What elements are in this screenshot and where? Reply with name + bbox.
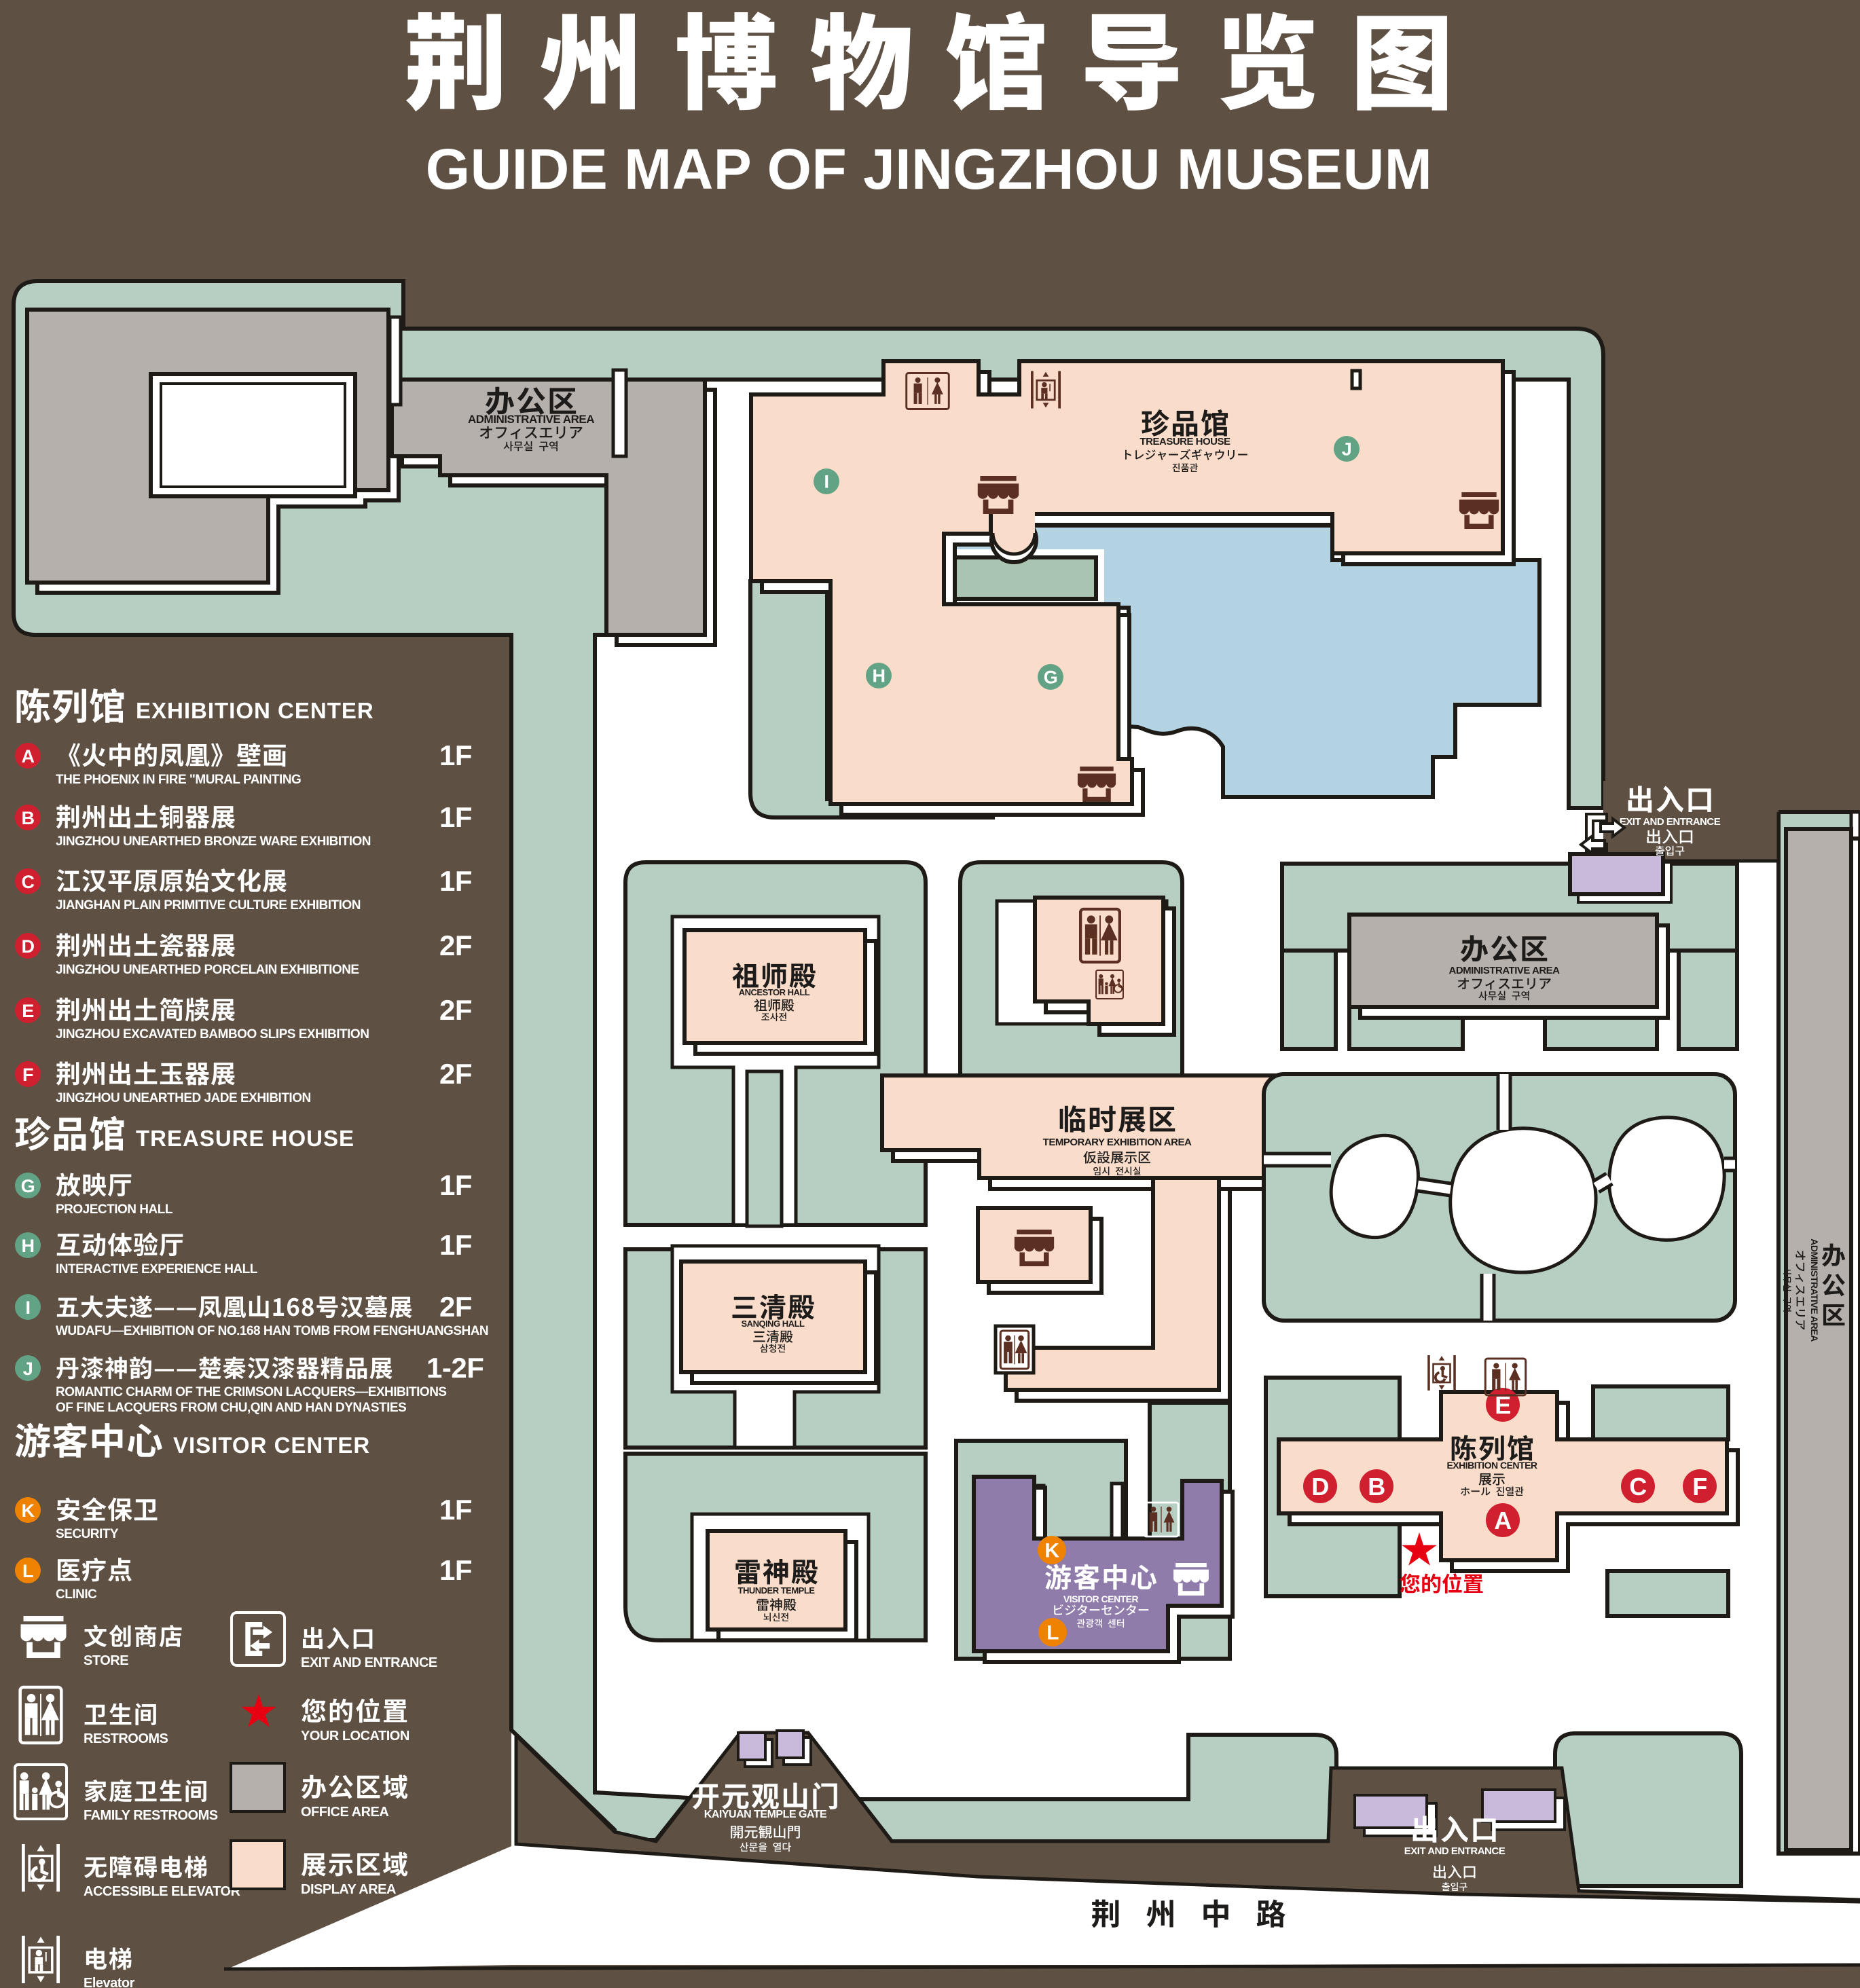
svg-text:1F: 1F: [439, 1169, 472, 1201]
svg-text:THUNDER TEMPLE: THUNDER TEMPLE: [738, 1585, 816, 1596]
svg-text:EXHIBITION CENTER: EXHIBITION CENTER: [1446, 1460, 1537, 1471]
svg-text:JINGZHOU UNEARTHED JADE EXHIBI: JINGZHOU UNEARTHED JADE EXHIBITION: [56, 1091, 311, 1105]
svg-text:ADMINISTRATIVE AREA: ADMINISTRATIVE AREA: [1809, 1238, 1820, 1342]
svg-text:L: L: [1046, 1622, 1059, 1644]
svg-text:1F: 1F: [439, 801, 472, 833]
svg-text:ADMINISTRATIVE AREA: ADMINISTRATIVE AREA: [468, 413, 594, 426]
svg-text:RESTROOMS: RESTROOMS: [84, 1731, 168, 1746]
svg-text:EXIT AND ENTRANCE: EXIT AND ENTRANCE: [1620, 816, 1721, 828]
svg-text:G: G: [1044, 667, 1058, 688]
svg-text:OF FINE LACQUERS FROM CHU,QIN: OF FINE LACQUERS FROM CHU,QIN AND HAN DY…: [56, 1401, 406, 1415]
svg-text:2F: 2F: [439, 1058, 472, 1090]
svg-text:A: A: [1494, 1507, 1512, 1534]
svg-text:1F: 1F: [439, 1554, 472, 1586]
svg-text:B: B: [22, 808, 35, 828]
svg-text:C: C: [22, 872, 35, 892]
svg-text:EXIT AND ENTRANCE: EXIT AND ENTRANCE: [1404, 1845, 1506, 1857]
svg-text:2F: 2F: [439, 994, 472, 1026]
svg-text:1F: 1F: [439, 1229, 472, 1261]
svg-text:VISITOR CENTER: VISITOR CENTER: [173, 1433, 370, 1458]
svg-text:WUDAFU—EXHIBITION OF NO.168 HA: WUDAFU—EXHIBITION OF NO.168 HAN TOMB FRO…: [56, 1324, 488, 1338]
svg-text:1F: 1F: [439, 739, 472, 771]
svg-text:ADMINISTRATIVE AREA: ADMINISTRATIVE AREA: [1449, 965, 1561, 976]
svg-text:STORE: STORE: [84, 1653, 128, 1668]
svg-text:2F: 2F: [439, 1291, 472, 1323]
svg-text:G: G: [21, 1176, 35, 1196]
svg-text:JINGZHOU UNEARTHED PORCELAIN E: JINGZHOU UNEARTHED PORCELAIN EXHIBITIONE: [56, 963, 359, 977]
svg-text:1F: 1F: [439, 1494, 472, 1526]
svg-text:J: J: [1342, 439, 1352, 460]
svg-text:F: F: [22, 1065, 33, 1085]
svg-text:A: A: [22, 746, 35, 767]
svg-text:SANQING HALL: SANQING HALL: [742, 1319, 805, 1329]
svg-text:JIANGHAN PLAIN PRIMITIVE CULTU: JIANGHAN PLAIN PRIMITIVE CULTURE EXHIBIT…: [56, 898, 361, 913]
svg-text:D: D: [1311, 1473, 1329, 1501]
svg-text:ROMANTIC CHARM OF THE CRIMSON: ROMANTIC CHARM OF THE CRIMSON LACQUERS—E…: [56, 1385, 447, 1399]
svg-text:Elevator: Elevator: [84, 1976, 135, 1988]
svg-text:E: E: [22, 1001, 34, 1021]
svg-text:KAIYUAN TEMPLE GATE: KAIYUAN TEMPLE GATE: [704, 1809, 827, 1820]
svg-text:2F: 2F: [439, 929, 472, 961]
svg-text:B: B: [1368, 1473, 1385, 1501]
svg-text:I: I: [25, 1297, 30, 1318]
svg-text:JINGZHOU EXCAVATED BAMBOO SLIP: JINGZHOU EXCAVATED BAMBOO SLIPS EXHIBITI…: [56, 1027, 369, 1042]
svg-text:EXIT AND ENTRANCE: EXIT AND ENTRANCE: [301, 1655, 437, 1670]
svg-text:TEMPORARY EXHIBITION AREA: TEMPORARY EXHIBITION AREA: [1043, 1137, 1192, 1148]
svg-text:C: C: [1629, 1473, 1647, 1501]
svg-text:TREASURE HOUSE: TREASURE HOUSE: [1139, 436, 1230, 447]
svg-text:YOUR LOCATION: YOUR LOCATION: [301, 1729, 409, 1744]
svg-text:J: J: [23, 1359, 33, 1379]
svg-text:1-2F: 1-2F: [426, 1352, 484, 1384]
svg-text:K: K: [1044, 1540, 1059, 1562]
svg-text:TREASURE HOUSE: TREASURE HOUSE: [136, 1126, 354, 1151]
svg-text:SECURITY: SECURITY: [56, 1527, 119, 1541]
svg-text:EXHIBITION CENTER: EXHIBITION CENTER: [136, 698, 374, 723]
svg-text:VISITOR CENTER: VISITOR CENTER: [1063, 1594, 1139, 1604]
svg-text:PROJECTION HALL: PROJECTION HALL: [56, 1202, 173, 1217]
svg-text:D: D: [22, 936, 35, 957]
svg-text:H: H: [873, 666, 886, 686]
svg-text:F: F: [1692, 1473, 1707, 1501]
svg-text:DISPLAY AREA: DISPLAY AREA: [301, 1882, 396, 1897]
svg-text:CLINIC: CLINIC: [56, 1587, 97, 1602]
svg-text:I: I: [824, 472, 828, 492]
svg-text:ACCESSIBLE ELEVATOR: ACCESSIBLE ELEVATOR: [84, 1884, 241, 1899]
svg-text:OFFICE AREA: OFFICE AREA: [301, 1805, 388, 1820]
svg-text:H: H: [22, 1236, 35, 1256]
svg-text:L: L: [22, 1561, 33, 1581]
svg-text:ANCESTOR HALL: ANCESTOR HALL: [739, 987, 810, 997]
svg-text:GUIDE MAP OF JINGZHOU MUSEUM: GUIDE MAP OF JINGZHOU MUSEUM: [426, 137, 1433, 201]
svg-text:INTERACTIVE EXPERIENCE HALL: INTERACTIVE EXPERIENCE HALL: [56, 1262, 258, 1276]
svg-text:JINGZHOU UNEARTHED BRONZE WARE: JINGZHOU UNEARTHED BRONZE WARE EXHIBITIO…: [56, 834, 371, 849]
svg-text:K: K: [22, 1501, 35, 1521]
svg-text:THE PHOENIX IN FIRE "MURAL PAI: THE PHOENIX IN FIRE "MURAL PAINTING: [56, 773, 301, 787]
svg-text:1F: 1F: [439, 865, 472, 897]
svg-text:FAMILY RESTROOMS: FAMILY RESTROOMS: [84, 1808, 218, 1823]
